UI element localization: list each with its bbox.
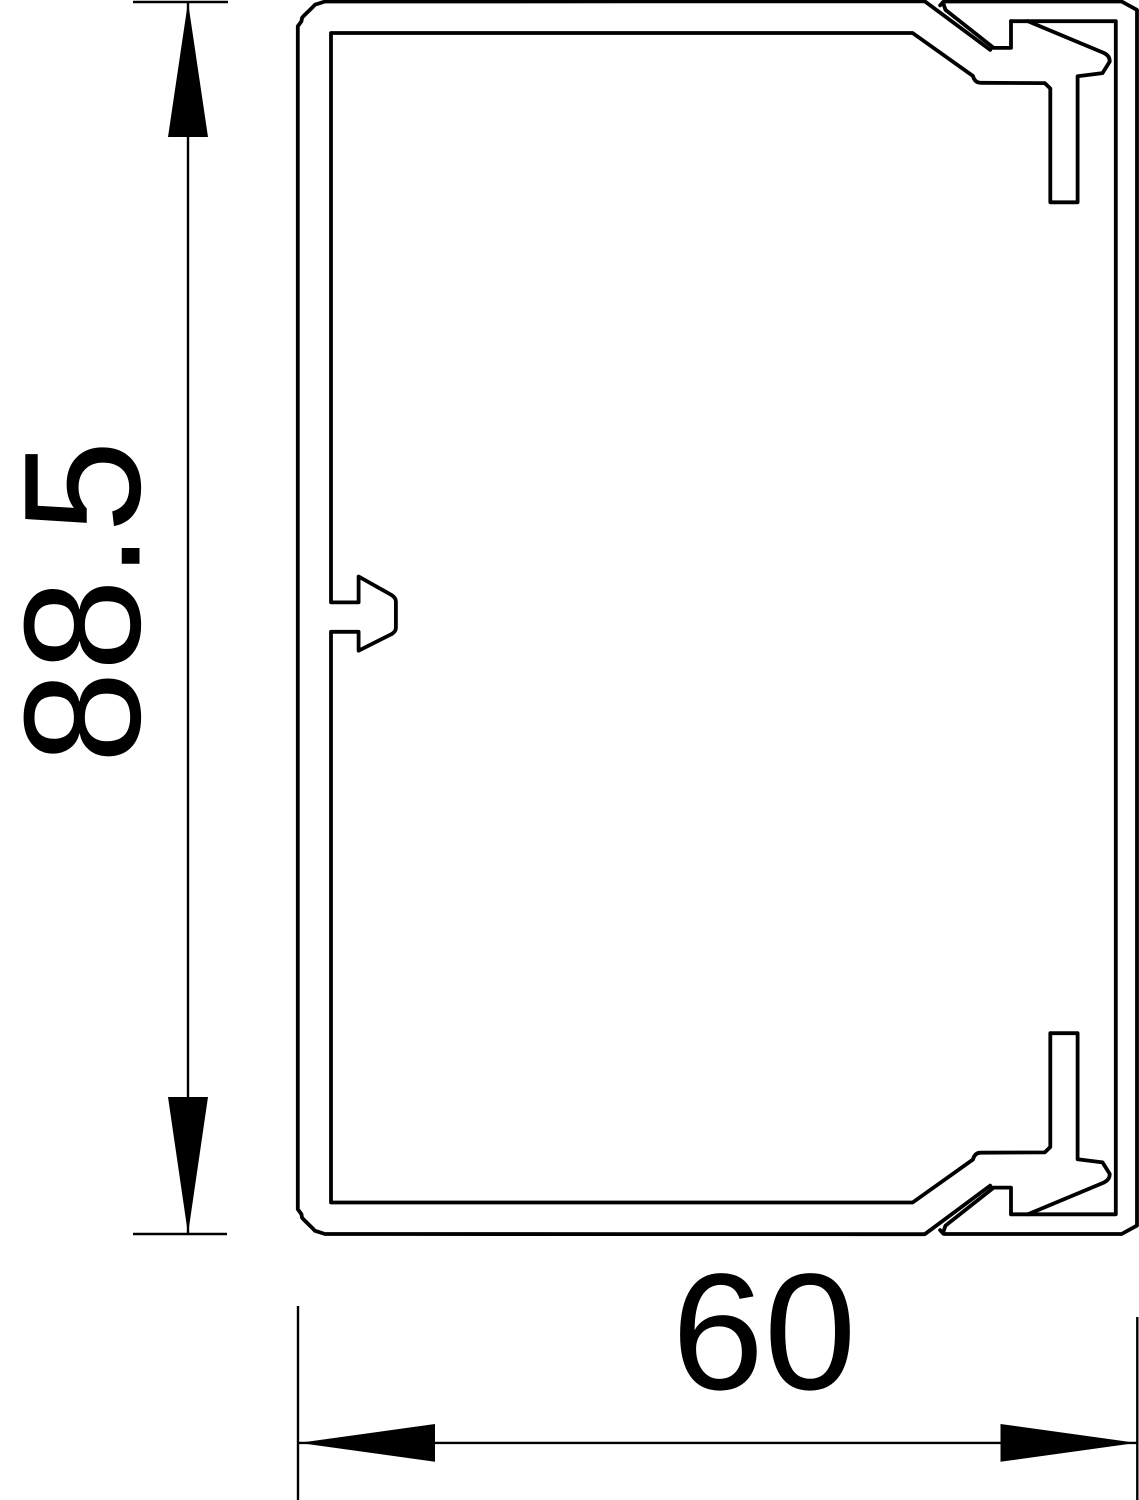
svg-text:60: 60 [672,1240,857,1425]
svg-text:88.5: 88.5 [0,440,176,763]
